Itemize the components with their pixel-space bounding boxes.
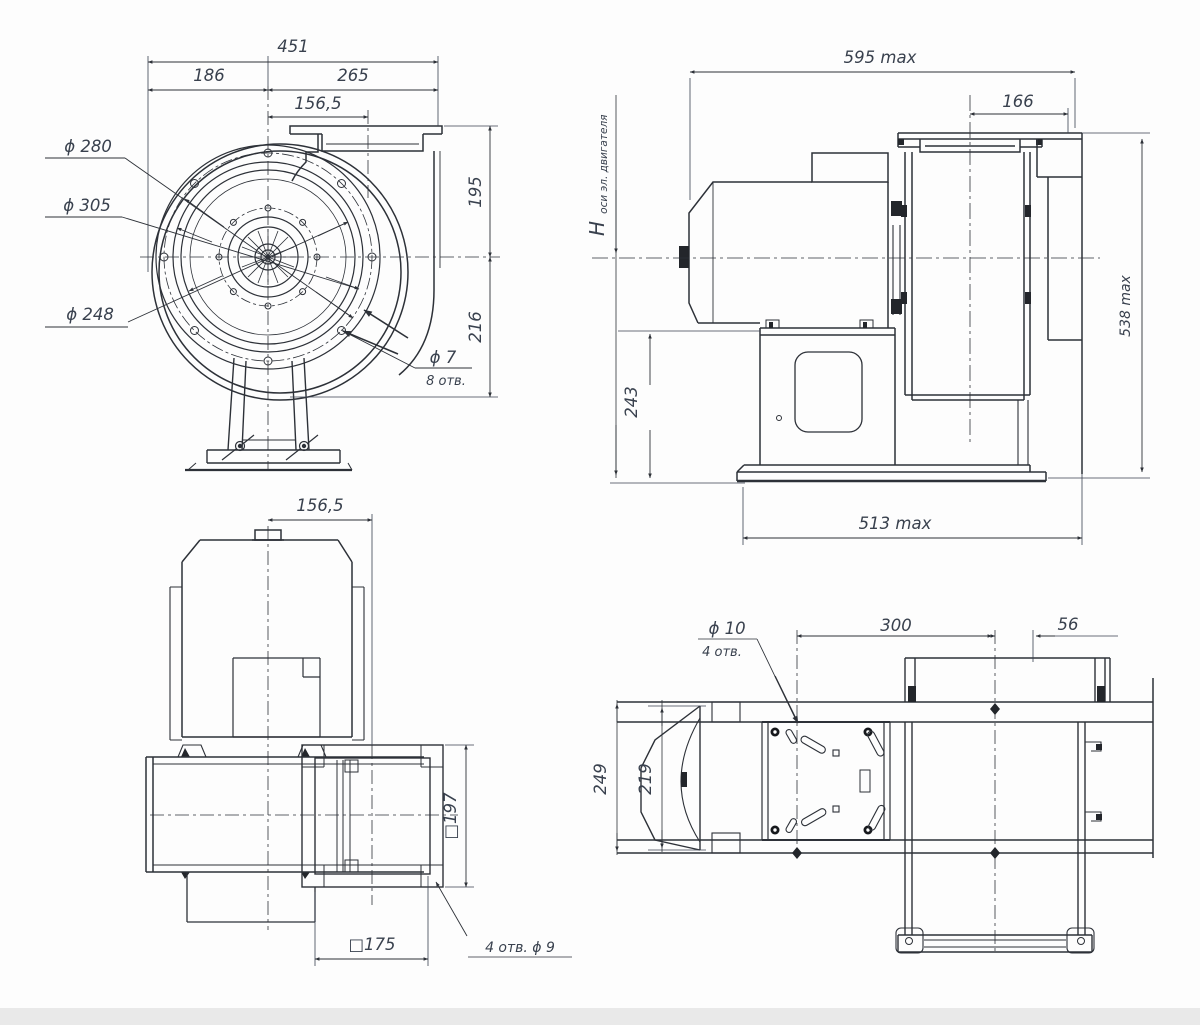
axis-height-label: H оси эл. двигателя [585,115,610,236]
dim-513-label: 513 max [859,514,932,533]
center-marks [792,703,1000,859]
motor-feet-pads [178,745,326,879]
dim-166-label: 166 [1002,92,1034,111]
wing-bolts [222,435,318,460]
holes-9-label: 4 отв. ϕ 9 [485,940,555,956]
dim-595-label: 595 max [844,48,917,67]
top-view-extension-lines [315,514,474,966]
base-plan-lines [187,872,315,922]
outlet-flange-plan [302,745,443,887]
top-view: 156,5 □197 □175 4 отв. ϕ 9 [146,496,572,966]
dim-197-label: □197 [441,792,460,840]
inlet-plan-centerlines [797,630,995,952]
dim-156-top-label: 156,5 [296,496,343,515]
axis-h-sub: оси эл. двигателя [598,115,610,214]
frame-band [617,678,1153,858]
side-extension-lines [610,78,1150,545]
pedestal [760,320,895,465]
dim-538-label: 538 max [1118,274,1134,336]
front-view: 451 186 265 156,5 ϕ 280 ϕ 305 ϕ 248 195 … [45,37,500,470]
dia-248-label: ϕ 248 [66,305,114,324]
support-legs [185,358,352,470]
casing-plan [146,757,424,872]
drawing-canvas: 451 186 265 156,5 ϕ 280 ϕ 305 ϕ 248 195 … [0,0,1200,1025]
dim-175-label: □175 [348,935,395,954]
axis-h: H [585,221,609,236]
plate-bolt-holes [771,728,873,835]
dim-195-label: 195 [466,176,485,208]
bottom-gray-strip [0,1008,1200,1025]
dim-216-label: 216 [466,311,485,343]
top-view-dimension-lines [268,520,572,959]
holes-7-label: ϕ 7 [430,348,457,367]
dim-265-label: 265 [337,66,369,85]
fan-casing-side [898,133,1082,474]
side-labels: 595 max 166 H оси эл. двигателя 243 538 … [585,48,1134,533]
top-view-centerlines [150,526,458,930]
dim-156-front-label: 156,5 [294,94,341,113]
holes-10-qty-label: 4 отв. [702,645,742,660]
motor-plan [170,530,364,740]
side-dimension-lines [616,72,1142,538]
dim-451-label: 451 [277,37,309,56]
dim-56-label: 56 [1058,615,1079,634]
dim-249-label: 249 [591,763,610,795]
base-frame-side [737,465,1046,481]
dim-186-label: 186 [193,66,225,85]
technical-drawing: 451 186 265 156,5 ϕ 280 ϕ 305 ϕ 248 195 … [0,0,1200,1025]
dim-300-label: 300 [880,616,912,635]
dia-305-label: ϕ 305 [63,196,111,215]
plate-slots [785,728,886,833]
dim-243-label: 243 [622,386,641,418]
front-centerlines [140,86,500,470]
holes-7-qty-label: 8 отв. [426,374,466,389]
dim-219-label: 219 [636,763,655,795]
motor-outline [679,153,902,328]
dia-280-label: ϕ 280 [64,137,112,156]
side-view: 595 max 166 H оси эл. двигателя 243 538 … [585,48,1150,545]
inlet-plan-labels: ϕ 10 4 отв. 300 56 249 219 [591,615,1079,795]
holes-10-label: ϕ 10 [708,619,745,638]
inlet-plan-dimension-lines [617,636,1055,855]
inlet-plan-extension-lines [648,630,1118,850]
inlet-plan-view: ϕ 10 4 отв. 300 56 249 219 [591,615,1153,953]
